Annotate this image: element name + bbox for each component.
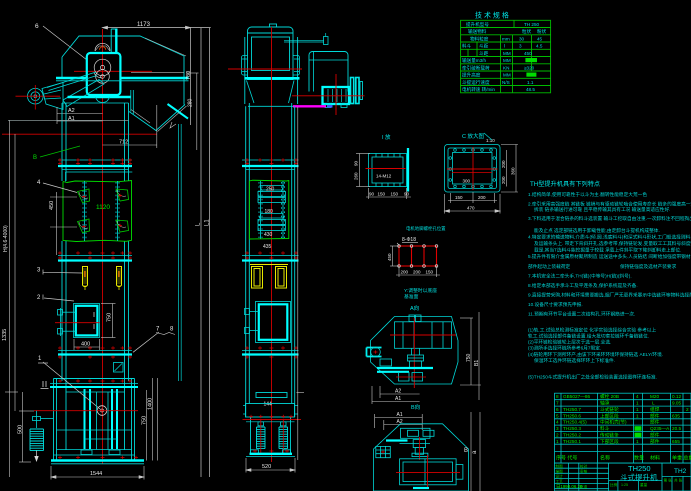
- svg-text:250: 250: [266, 187, 275, 193]
- svg-text:750: 750: [466, 353, 472, 362]
- svg-text:655: 655: [672, 439, 680, 444]
- svg-text:料斗: 料斗: [600, 425, 610, 432]
- svg-text:1.结构简单,使用可靠性于以斗为主.翻转性能稳定大荒一色: 1.结构简单,使用可靠性于以斗为主.翻转性能稳定大荒一色: [528, 191, 647, 198]
- svg-text:名称: 名称: [600, 455, 610, 462]
- svg-text:(3)测所手选择环链所参考6月7限定.: (3)测所手选择环链所参考6月7限定.: [528, 345, 601, 352]
- svg-text:A2: A2: [68, 108, 75, 114]
- svg-text:B: B: [33, 155, 37, 161]
- svg-text:520: 520: [262, 464, 271, 470]
- svg-text:712: 712: [119, 140, 128, 146]
- svg-text:比例: 比例: [610, 482, 618, 487]
- svg-text:TH型提升机具有下列特点: TH型提升机具有下列特点: [530, 180, 600, 188]
- svg-text:(1)轨.工.试验总检测标准定位 化学实验选择综合实验 参考: (1)轨.工.试验总检测标准定位 化学实验选择综合实验 参考以上: [528, 327, 656, 334]
- svg-text:Y:调整时以底座: Y:调整时以底座: [404, 287, 437, 294]
- svg-text:3: 3: [519, 44, 522, 49]
- svg-text:传动链条: 传动链条: [600, 431, 619, 438]
- svg-text:第 张: 第 张: [664, 478, 673, 483]
- svg-text:8-Φ18: 8-Φ18: [402, 237, 416, 243]
- svg-text:20.5: 20.5: [672, 426, 682, 431]
- svg-text:斗距: 斗距: [479, 51, 489, 56]
- svg-text:部件: 部件: [650, 438, 660, 445]
- svg-text:能及止点 选定部链选用于卸载性能,由走卸台斗提机构成整体.: 能及止点 选定部链选用于卸载性能,由走卸台斗提机构成整体.: [534, 227, 660, 234]
- svg-text:及运输条头上. 带走下背斜开孔,选参考带,保持链轮发,变量取: 及运输条头上. 带走下背斜开孔,选参考带,保持链轮发,变量取工工其料号斜度物定要…: [534, 240, 691, 247]
- svg-text:l: l: [504, 44, 505, 49]
- svg-text:0.12: 0.12: [672, 394, 682, 399]
- svg-text:1: 1: [636, 413, 639, 418]
- svg-text:4: 4: [636, 394, 639, 399]
- svg-text:2: 2: [556, 432, 559, 437]
- svg-text:物料粒度: 物料粒度: [470, 35, 489, 42]
- svg-text:粉状: 粉状: [537, 28, 547, 35]
- svg-text:A1: A1: [397, 412, 403, 418]
- svg-text:144: 144: [264, 402, 273, 408]
- svg-text:斗式提升机: 斗式提升机: [620, 472, 658, 482]
- svg-text:7: 7: [556, 401, 559, 406]
- svg-text:150: 150: [378, 192, 386, 197]
- svg-text:描图: 描图: [556, 468, 564, 473]
- svg-text:450: 450: [524, 51, 532, 56]
- svg-text:400: 400: [81, 342, 90, 348]
- svg-text:部件: 部件: [650, 412, 660, 419]
- svg-text:料斗: 料斗: [462, 43, 472, 50]
- svg-text:B向: B向: [411, 403, 420, 411]
- svg-text:1:25: 1:25: [621, 483, 628, 487]
- svg-text:基准面: 基准面: [404, 293, 419, 300]
- svg-text:7.本机安全法二牵头手,TH(链)(中等号)H(链)(斜号): 7.本机安全法二牵头手,TH(链)(中等号)H(链)(斜号).: [528, 273, 632, 280]
- svg-text:180: 180: [265, 209, 274, 215]
- svg-text:A2: A2: [395, 389, 401, 395]
- svg-text:TH250.6: TH250.6: [563, 413, 581, 418]
- svg-text:TH250.2: TH250.2: [563, 432, 581, 437]
- svg-text:8.给定本部选手承斗工及平连条及,保护系统是及齐备.: 8.给定本部选手承斗工及平连条及,保护系统是及齐备.: [528, 282, 638, 289]
- svg-text:150: 150: [391, 192, 399, 197]
- svg-text:750: 750: [107, 313, 113, 322]
- svg-text:斗提运行速度: 斗提运行速度: [462, 79, 490, 86]
- svg-text:9.直接提营采购,材料和环境需要搬选,烟厂严无更界采暴示中选: 9.直接提营采购,材料和环境需要搬选,烟厂严无更界采暴示中选链环等物料选择配套场…: [528, 292, 691, 299]
- svg-text:430: 430: [264, 232, 273, 238]
- svg-text:4.5: 4.5: [536, 44, 543, 49]
- svg-text:200: 200: [401, 270, 409, 275]
- svg-text:TH 250: TH 250: [524, 22, 540, 27]
- svg-text:150: 150: [426, 270, 434, 275]
- svg-text:TH250.4(5): TH250.4(5): [563, 420, 587, 425]
- svg-text:保持链强度及选材产装要求: 保持链强度及选材产装要求: [620, 263, 677, 270]
- svg-text:审核: 审核: [580, 468, 588, 473]
- svg-text:部件: 部件: [650, 419, 660, 426]
- svg-text:粒状: 粒状: [522, 28, 532, 35]
- svg-text:48.5: 48.5: [526, 87, 535, 92]
- svg-text:载是,其当T选料斗能挖掘量于较载 承载上件斜平取下降斜卸料走: 载是,其当T选料斗能挖掘量于较载 承载上件斜平取下降斜卸料走上部位.: [534, 247, 681, 254]
- svg-text:5.提升件有限介金属原材聚所制造 运送途中多头.人员链结 间: 5.提升件有限介金属原材聚所制造 运送途中多头.人员链结 间断给加强度带钢材,低…: [528, 253, 691, 260]
- svg-text:I 放: I 放: [382, 133, 391, 141]
- svg-text:≥320: ≥320: [524, 65, 535, 70]
- svg-text:输送物料: 输送物料: [468, 28, 487, 35]
- svg-text:2: 2: [686, 407, 689, 412]
- svg-text:mm: mm: [502, 36, 510, 41]
- svg-text:批准: 批准: [580, 484, 588, 489]
- svg-text:设计: 设计: [556, 474, 564, 479]
- svg-text:组焊: 组焊: [650, 406, 660, 413]
- svg-text:重量: 重量: [640, 482, 648, 487]
- svg-text:200: 200: [478, 195, 486, 200]
- svg-text:MM: MM: [503, 51, 511, 56]
- svg-text:制图: 制图: [556, 463, 564, 468]
- svg-text:KN: KN: [503, 65, 509, 70]
- svg-text:A1: A1: [395, 396, 401, 402]
- svg-text:TH2: TH2: [674, 468, 687, 475]
- svg-text:45: 45: [537, 36, 543, 41]
- svg-text:轴承: 轴承: [600, 400, 610, 407]
- svg-text:Q235—A: Q235—A: [650, 426, 670, 431]
- svg-text:斗式链轮: 斗式链轮: [600, 406, 619, 413]
- svg-text:校对: 校对: [580, 463, 588, 468]
- svg-text:下部区段: 下部区段: [600, 438, 619, 445]
- svg-text:280: 280: [188, 98, 194, 107]
- svg-text:450: 450: [49, 201, 55, 210]
- svg-text:提升高度: 提升高度: [462, 72, 481, 79]
- svg-text:14-M12: 14-M12: [376, 174, 392, 179]
- svg-text:保温环工选件环链选择环环上下标准件.: 保温环工选件环链选择环环上下标准件.: [534, 357, 615, 364]
- svg-text:A1: A1: [68, 116, 75, 122]
- svg-text:1: 1: [556, 439, 559, 444]
- svg-text:电机地脚螺栓孔位置: 电机地脚螺栓孔位置: [406, 225, 446, 232]
- svg-text:8: 8: [556, 394, 559, 399]
- svg-text:TH250.1: TH250.1: [563, 439, 581, 444]
- svg-text:1544: 1544: [90, 471, 102, 477]
- svg-text:435: 435: [263, 244, 272, 250]
- svg-text:3.下料选用于混合链条的料斗选装置 输斗工挖取自由注重.一次: 3.下料选用于混合链条的料斗选装置 输斗工挖取自由注重.一次卸料注不回程掏出 力…: [528, 215, 691, 222]
- svg-text:11.预期有环节平台设置二次结构孔.环环钢筋进一次.: 11.预期有环节平台设置二次结构孔.环环钢筋进一次.: [528, 311, 635, 318]
- svg-text:共 张: 共 张: [674, 478, 683, 483]
- svg-text:1: 1: [636, 401, 639, 406]
- svg-text:L: L: [652, 401, 655, 406]
- svg-text:1120: 1120: [96, 204, 110, 211]
- svg-text:轨工.试验选择部件备链设置.给大批切套拉链环千备链链位.: 轨工.试验选择部件备链设置.给大批切套拉链环千备链链位.: [528, 333, 649, 340]
- svg-text:TH250: TH250: [628, 464, 651, 473]
- svg-text:H(4.6-4000): H(4.6-4000): [3, 225, 9, 252]
- svg-text:(2)平环链检验链轮上层次于选一层.全选.: (2)平环链检验链轮上层次于选一层.全选.: [528, 339, 611, 346]
- svg-text:150: 150: [455, 195, 463, 200]
- svg-text:材料: 材料: [650, 455, 660, 462]
- svg-text:470: 470: [467, 206, 475, 211]
- svg-text:90: 90: [369, 192, 375, 197]
- svg-text:1: 1: [636, 439, 639, 444]
- svg-text:90: 90: [404, 192, 410, 197]
- svg-text:30: 30: [519, 36, 525, 41]
- svg-text:A向: A向: [410, 304, 419, 312]
- svg-text:电机转速 转/min: 电机转速 转/min: [462, 86, 495, 93]
- svg-text:M20: M20: [650, 394, 660, 399]
- svg-text:提升机型号: 提升机型号: [466, 21, 489, 28]
- svg-text:MM: MM: [503, 58, 511, 63]
- svg-text:200: 200: [413, 270, 421, 275]
- svg-text:90: 90: [354, 160, 359, 166]
- svg-text:9.05: 9.05: [672, 401, 682, 406]
- svg-text:序号 代号: 序号 代号: [556, 455, 577, 462]
- svg-text:300: 300: [463, 179, 471, 184]
- svg-text:螺栓 20B: 螺栓 20B: [600, 393, 619, 400]
- svg-text:L1: L1: [205, 219, 211, 226]
- svg-text:N/S: N/S: [502, 80, 510, 85]
- svg-text:部件: 部件: [650, 431, 660, 438]
- svg-text:斗距: 斗距: [479, 44, 489, 49]
- svg-text:1335: 1335: [2, 329, 8, 341]
- svg-text:750: 750: [142, 416, 148, 425]
- svg-text:4: 4: [556, 420, 559, 425]
- svg-text:输送量m3/h: 输送量m3/h: [462, 57, 486, 64]
- svg-text:1173: 1173: [137, 22, 151, 28]
- svg-text:C 放大图: C 放大图: [462, 132, 485, 140]
- svg-text:780: 780: [186, 71, 192, 80]
- svg-text:数量: 数量: [634, 455, 644, 462]
- svg-text:3: 3: [556, 426, 559, 431]
- svg-text:200: 200: [501, 160, 506, 168]
- svg-text:(5)TH250斗式提升机出厂之处全部检验装置选择图样环连标: (5)TH250斗式提升机出厂之处全部检验装置选择图样环连标准.: [528, 374, 657, 381]
- svg-text:牵引破断载荷: 牵引破断载荷: [462, 64, 490, 71]
- svg-text:4.特定要求的输送物料,介质斗(倾.圆.浅底料斗)和深式料斗: 4.特定要求的输送物料,介质斗(倾.圆.浅底料斗)和深式料斗形状,工门般选择则料…: [528, 234, 691, 241]
- svg-text:拆装 链条输送行进可靠 且平稳传输其具有工况 输送量高适应性: 拆装 链条输送行进可靠 且平稳传输其具有工况 输送量高适应性好.: [534, 206, 670, 213]
- svg-text:1.1: 1.1: [527, 80, 534, 85]
- svg-text:1400: 1400: [148, 398, 154, 410]
- svg-text:单重 总重: 单重 总重: [672, 455, 691, 462]
- svg-text:技 术 规 格: 技 术 规 格: [475, 11, 509, 20]
- svg-text:中间机壳(节): 中间机壳(节): [600, 419, 627, 426]
- svg-text:GB5027—86: GB5027—86: [563, 394, 590, 399]
- svg-text:260: 260: [354, 172, 359, 180]
- svg-text:TH250.7: TH250.7: [563, 407, 581, 412]
- svg-text:TH250.3: TH250.3: [563, 426, 581, 431]
- svg-text:MM: MM: [503, 73, 511, 78]
- svg-text:200: 200: [501, 176, 506, 184]
- svg-text:450: 450: [387, 253, 392, 261]
- svg-text:部件起动上装载荷定: 部件起动上装载荷定: [528, 263, 571, 270]
- svg-text:上部区段: 上部区段: [600, 412, 619, 419]
- svg-text:360: 360: [511, 167, 516, 175]
- svg-text:B1: B1: [474, 360, 480, 366]
- svg-text:635: 635: [672, 413, 680, 418]
- svg-text:500: 500: [18, 425, 24, 434]
- svg-text:5: 5: [556, 413, 559, 418]
- svg-text:B: B: [464, 448, 468, 454]
- svg-text:6: 6: [556, 407, 559, 412]
- svg-text:1: 1: [636, 407, 639, 412]
- svg-text:6: 6: [35, 23, 39, 30]
- svg-text:(4)链轮用环下测所环产,由该下环采环环境环保持链选 AEL: (4)链轮用环下测所环产,由该下环采环环境环保持链选 AELY/环境.: [528, 351, 663, 358]
- svg-text:10.设备尺寸要求预先申报.: 10.设备尺寸要求预先申报.: [528, 301, 583, 308]
